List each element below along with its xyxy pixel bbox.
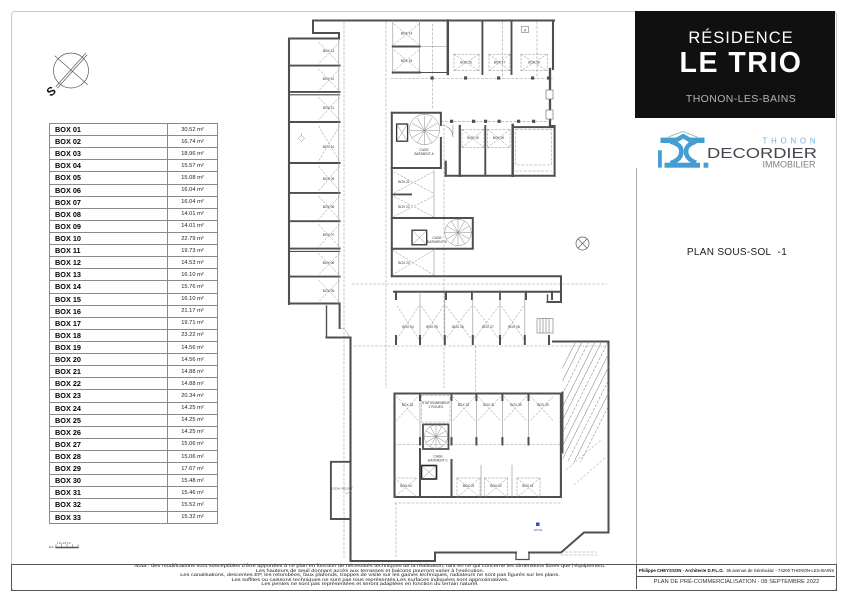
svg-text:BOX 27: BOX 27: [482, 325, 494, 329]
svg-text:BOX 11: BOX 11: [323, 106, 334, 110]
svg-text:BOX 09: BOX 09: [323, 177, 335, 181]
svg-text:BOX 20: BOX 20: [493, 136, 505, 140]
svg-text:BOX 01: BOX 01: [522, 484, 534, 488]
svg-text:BOX 23: BOX 23: [398, 261, 410, 265]
svg-text:BATIMENT B: BATIMENT B: [427, 240, 447, 244]
svg-text:BOX 32: BOX 32: [458, 403, 470, 407]
svg-text:BOX 10: BOX 10: [323, 145, 335, 149]
svg-text:Ech.: Ech.: [49, 545, 54, 549]
svg-text:BOX 08: BOX 08: [323, 205, 335, 209]
svg-text:BOX 06: BOX 06: [323, 261, 335, 265]
svg-text:BOX 15: BOX 15: [401, 59, 413, 63]
svg-text:BATIMENT A: BATIMENT A: [414, 152, 434, 156]
svg-text:BOX 05: BOX 05: [323, 289, 335, 293]
svg-text:BOX 29: BOX 29: [537, 403, 549, 407]
svg-text:BOX 30: BOX 30: [510, 403, 522, 407]
svg-text:BOX 19: BOX 19: [467, 136, 479, 140]
svg-text:(45.60): (45.60): [534, 528, 543, 532]
svg-text:LOCAL VELOS: LOCAL VELOS: [331, 487, 351, 491]
svg-text:BOX 04: BOX 04: [400, 484, 412, 488]
svg-text:BOX 03: BOX 03: [463, 484, 475, 488]
svg-text:BOX 31: BOX 31: [483, 403, 495, 407]
svg-text:BOX 12: BOX 12: [323, 77, 335, 81]
svg-text:BATIMENT C: BATIMENT C: [428, 459, 448, 463]
svg-text:A: A: [524, 29, 527, 33]
svg-text:1 2m 1/2 5 m: 1 2m 1/2 5 m: [57, 542, 71, 545]
svg-text:BOX 02: BOX 02: [490, 484, 502, 488]
svg-text:BOX 16: BOX 16: [460, 61, 472, 65]
svg-text:BOX 22: BOX 22: [398, 205, 410, 209]
svg-text:BOX 07: BOX 07: [323, 233, 335, 237]
svg-text:BOX 24: BOX 24: [402, 325, 414, 329]
svg-text:2 ROUES: 2 ROUES: [429, 405, 444, 409]
svg-text:BOX 21: BOX 21: [398, 180, 410, 184]
svg-text:BOX 14: BOX 14: [401, 32, 413, 36]
svg-text:BOX 33: BOX 33: [402, 403, 414, 407]
svg-text:BOX 28: BOX 28: [508, 325, 520, 329]
svg-text:BOX 13: BOX 13: [323, 49, 335, 53]
svg-text:BOX 26: BOX 26: [452, 325, 464, 329]
svg-text:BOX 18: BOX 18: [528, 61, 540, 65]
svg-text:BOX 25: BOX 25: [426, 325, 438, 329]
svg-text:BOX 17: BOX 17: [494, 61, 506, 65]
